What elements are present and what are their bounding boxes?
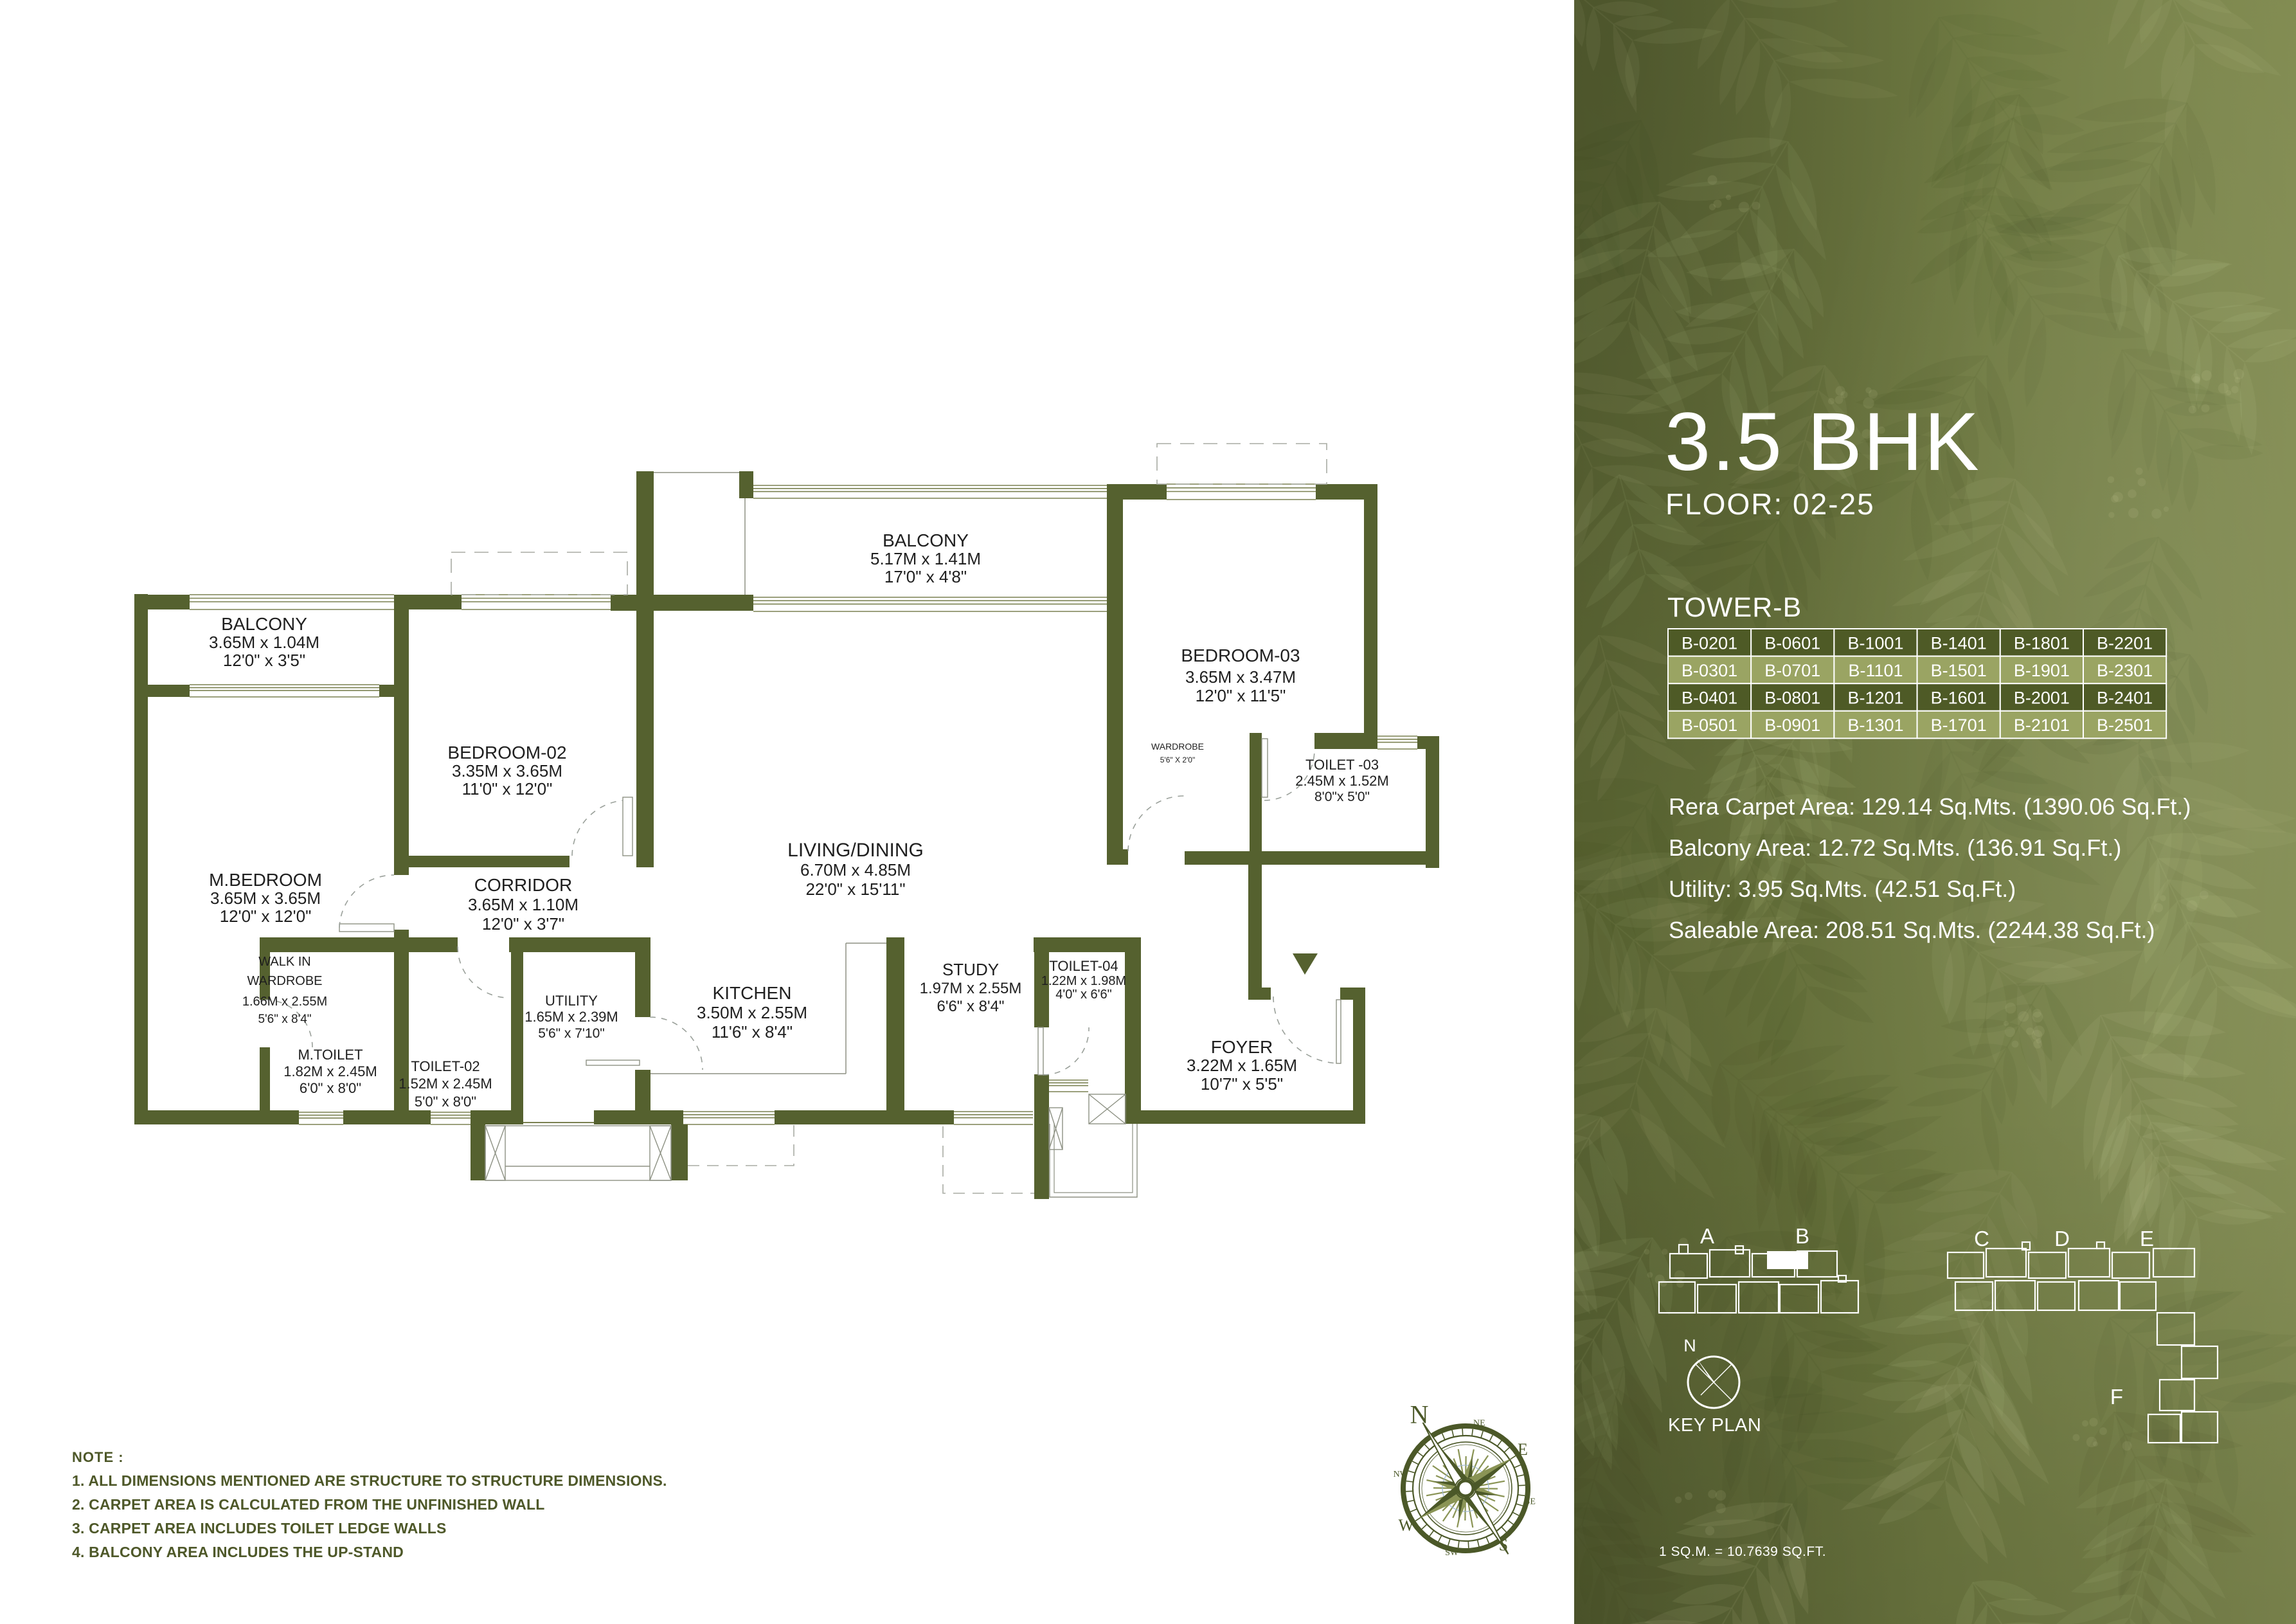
svg-text:E: E <box>1518 1440 1528 1459</box>
svg-text:KEY PLAN: KEY PLAN <box>1668 1415 1761 1436</box>
svg-text:TOILET-02: TOILET-02 <box>411 1058 480 1074</box>
svg-text:M.TOILET: M.TOILET <box>298 1047 363 1063</box>
svg-text:11'0" x 12'0": 11'0" x 12'0" <box>462 779 553 798</box>
svg-text:1.65M x 2.39M: 1.65M x 2.39M <box>525 1009 618 1025</box>
svg-text:3.35M x 3.65M: 3.35M x 3.65M <box>452 761 562 780</box>
svg-text:12'0" x 3'7": 12'0" x 3'7" <box>482 914 564 934</box>
svg-text:12'0" x 12'0": 12'0" x 12'0" <box>220 907 312 926</box>
svg-text:B-1901: B-1901 <box>2014 661 2070 680</box>
svg-text:SW: SW <box>1445 1548 1459 1558</box>
svg-text:6'0" x 8'0": 6'0" x 8'0" <box>300 1080 361 1096</box>
svg-text:WALK IN: WALK IN <box>258 955 311 969</box>
svg-text:Balcony Area: 12.72 Sq.Mts. (1: Balcony Area: 12.72 Sq.Mts. (136.91 Sq.F… <box>1669 835 2121 861</box>
svg-text:22'0" x 15'11": 22'0" x 15'11" <box>805 880 905 899</box>
svg-text:B-0201: B-0201 <box>1682 633 1737 653</box>
svg-text:B-1601: B-1601 <box>1931 689 1987 708</box>
svg-text:F: F <box>2110 1385 2123 1409</box>
svg-text:FOYER: FOYER <box>1211 1037 1273 1057</box>
svg-text:3.65M x 3.65M: 3.65M x 3.65M <box>210 889 321 908</box>
svg-text:1.66M x 2.55M: 1.66M x 2.55M <box>242 995 327 1009</box>
svg-text:UTILITY: UTILITY <box>545 993 598 1009</box>
svg-text:W: W <box>1398 1516 1414 1535</box>
svg-text:E: E <box>2140 1227 2154 1250</box>
svg-text:B-0301: B-0301 <box>1682 661 1737 680</box>
svg-text:3. CARPET AREA INCLUDES TOILET: 3. CARPET AREA INCLUDES TOILET LEDGE WAL… <box>72 1520 447 1537</box>
svg-text:5.17M x 1.41M: 5.17M x 1.41M <box>870 549 981 568</box>
svg-text:5'6" X 2'0": 5'6" X 2'0" <box>1160 755 1195 764</box>
svg-text:1.52M x 2.45M: 1.52M x 2.45M <box>399 1076 492 1092</box>
svg-text:D: D <box>2054 1227 2070 1250</box>
svg-text:B-1801: B-1801 <box>2014 633 2070 653</box>
svg-text:17'0" x 4'8": 17'0" x 4'8" <box>884 567 967 586</box>
svg-text:B-0601: B-0601 <box>1764 633 1820 653</box>
svg-text:SE: SE <box>1525 1497 1536 1507</box>
svg-text:3.65M x 1.10M: 3.65M x 1.10M <box>468 895 578 914</box>
svg-text:4. BALCONY AREA INCLUDES THE U: 4. BALCONY AREA INCLUDES THE UP-STAND <box>72 1544 404 1560</box>
svg-text:TOWER-B: TOWER-B <box>1667 592 1802 623</box>
svg-text:3.22M x 1.65M: 3.22M x 1.65M <box>1187 1056 1297 1075</box>
svg-text:B-1301: B-1301 <box>1847 716 1903 735</box>
svg-text:B-1401: B-1401 <box>1931 633 1987 653</box>
svg-text:NE: NE <box>1473 1419 1485 1429</box>
svg-text:B-2201: B-2201 <box>2097 633 2153 653</box>
svg-text:FLOOR: 02-25: FLOOR: 02-25 <box>1665 487 1875 521</box>
svg-text:TOILET -03: TOILET -03 <box>1305 757 1379 773</box>
svg-text:3.50M x 2.55M: 3.50M x 2.55M <box>697 1003 807 1022</box>
svg-text:B-1101: B-1101 <box>1848 661 1903 680</box>
svg-text:LIVING/DINING: LIVING/DINING <box>787 840 924 861</box>
svg-text:5'6" x 7'10": 5'6" x 7'10" <box>538 1026 605 1041</box>
svg-text:Saleable Area: 208.51 Sq.Mts.: Saleable Area: 208.51 Sq.Mts. (2244.38 S… <box>1669 917 2155 943</box>
svg-text:A: A <box>1700 1224 1714 1248</box>
svg-text:3.65M x 1.04M: 3.65M x 1.04M <box>209 633 319 652</box>
svg-text:1.82M x 2.45M: 1.82M x 2.45M <box>283 1063 377 1079</box>
svg-text:B-2401: B-2401 <box>2097 689 2153 708</box>
svg-text:B-1001: B-1001 <box>1847 633 1903 653</box>
svg-text:1 SQ.M. = 10.7639 SQ.FT.: 1 SQ.M. = 10.7639 SQ.FT. <box>1659 1544 1826 1559</box>
svg-text:4'0" x 6'6": 4'0" x 6'6" <box>1055 988 1111 1002</box>
svg-text:1. ALL DIMENSIONS MENTIONED AR: 1. ALL DIMENSIONS MENTIONED ARE STRUCTUR… <box>72 1472 667 1489</box>
svg-text:N: N <box>1410 1400 1429 1429</box>
svg-text:B-1701: B-1701 <box>1931 716 1987 735</box>
svg-text:B-1201: B-1201 <box>1847 689 1903 708</box>
svg-text:Utility: 3.95 Sq.Mts. (42.51 S: Utility: 3.95 Sq.Mts. (42.51 Sq.Ft.) <box>1669 876 2016 902</box>
svg-text:6.70M x 4.85M: 6.70M x 4.85M <box>800 860 911 880</box>
svg-text:2.45M x 1.52M: 2.45M x 1.52M <box>1295 773 1389 789</box>
svg-text:B: B <box>1795 1224 1809 1248</box>
svg-text:5'6" x 8'4": 5'6" x 8'4" <box>258 1013 311 1026</box>
svg-text:BEDROOM-03: BEDROOM-03 <box>1181 645 1300 665</box>
svg-text:B-0801: B-0801 <box>1764 689 1820 708</box>
svg-text:KITCHEN: KITCHEN <box>713 983 792 1003</box>
svg-text:M.BEDROOM: M.BEDROOM <box>209 870 322 890</box>
svg-text:BALCONY: BALCONY <box>883 530 969 550</box>
svg-text:Rera Carpet Area: 129.14 Sq.Mt: Rera Carpet Area: 129.14 Sq.Mts. (1390.0… <box>1669 793 2191 820</box>
svg-text:11'6" x 8'4": 11'6" x 8'4" <box>712 1022 793 1042</box>
svg-text:3.65M x 3.47M: 3.65M x 3.47M <box>1185 667 1296 687</box>
svg-text:CORRIDOR: CORRIDOR <box>474 875 572 895</box>
svg-text:WARDROBE: WARDROBE <box>1151 741 1204 752</box>
svg-text:B-2501: B-2501 <box>2097 716 2153 735</box>
svg-text:1.22M x 1.98M: 1.22M x 1.98M <box>1041 974 1126 988</box>
svg-text:B-0501: B-0501 <box>1682 716 1737 735</box>
svg-text:B-2301: B-2301 <box>2097 661 2153 680</box>
svg-text:N: N <box>1683 1336 1696 1355</box>
svg-text:TOILET-04: TOILET-04 <box>1049 958 1118 974</box>
svg-text:12'0" x 11'5": 12'0" x 11'5" <box>1196 686 1286 705</box>
svg-text:BALCONY: BALCONY <box>221 614 307 634</box>
svg-text:B-0401: B-0401 <box>1682 689 1737 708</box>
svg-text:NW: NW <box>1394 1470 1409 1479</box>
svg-text:6'6" x 8'4": 6'6" x 8'4" <box>937 998 1005 1015</box>
svg-text:B-2101: B-2101 <box>2014 716 2070 735</box>
svg-text:B-1501: B-1501 <box>1931 661 1987 680</box>
svg-text:B-0901: B-0901 <box>1764 716 1820 735</box>
svg-text:BEDROOM-02: BEDROOM-02 <box>447 743 566 762</box>
svg-text:NOTE :: NOTE : <box>72 1449 124 1465</box>
svg-text:C: C <box>1974 1227 1989 1250</box>
svg-text:S: S <box>1499 1536 1508 1555</box>
svg-text:12'0" x 3'5": 12'0" x 3'5" <box>223 651 305 670</box>
svg-text:8'0"x 5'0": 8'0"x 5'0" <box>1314 789 1370 804</box>
svg-text:5'0" x 8'0": 5'0" x 8'0" <box>415 1094 476 1110</box>
svg-text:3.5 BHK: 3.5 BHK <box>1665 396 1980 488</box>
svg-text:B-2001: B-2001 <box>2014 689 2070 708</box>
svg-text:2. CARPET AREA IS CALCULATED F: 2. CARPET AREA IS CALCULATED FROM THE UN… <box>72 1496 545 1513</box>
svg-text:10'7" x 5'5": 10'7" x 5'5" <box>1201 1074 1283 1094</box>
svg-text:1.97M x 2.55M: 1.97M x 2.55M <box>920 980 1022 997</box>
svg-text:WARDROBE: WARDROBE <box>247 974 322 988</box>
svg-text:B-0701: B-0701 <box>1764 661 1820 680</box>
svg-text:STUDY: STUDY <box>942 960 999 979</box>
